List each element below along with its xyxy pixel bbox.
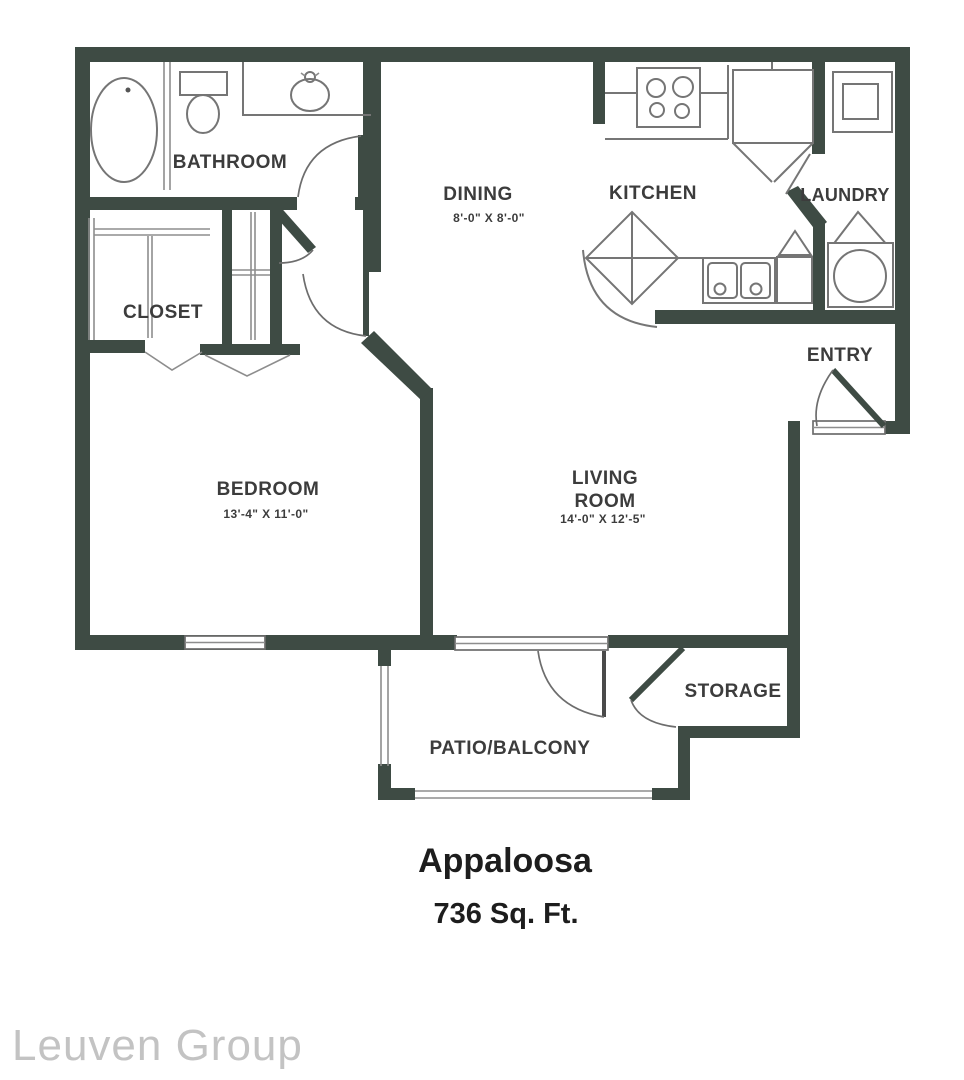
watermark-text: Leuven Group (12, 1021, 303, 1070)
cabinet-door-icon (779, 231, 811, 255)
dryer-door-icon (832, 212, 888, 246)
kitchen-sink-icon (703, 258, 775, 303)
wall-linen-bottom (200, 344, 300, 355)
toilet-bowl-icon (187, 95, 219, 133)
patio-label: PATIO/BALCONY (430, 738, 591, 759)
toilet-tank-icon (180, 72, 227, 95)
dining-label: DINING (443, 184, 513, 205)
closet-label: CLOSET (123, 302, 203, 323)
wall-kitchen-left-stub (593, 62, 605, 124)
laundry-label: LAUNDRY (800, 185, 889, 205)
living-room-dimensions: 14'-0" X 12'-5" (560, 512, 646, 526)
wall-storage-bottom (680, 726, 800, 738)
wall-bathroom-right (363, 62, 381, 272)
dining-dimensions: 8'-0" X 8'-0" (453, 211, 525, 225)
storage-door-leaf (631, 648, 683, 700)
plan-area: 736 Sq. Ft. (433, 898, 578, 930)
dryer-icon (828, 243, 893, 307)
peninsula-counter-arc (583, 250, 657, 327)
plan-name: Appaloosa (418, 842, 593, 880)
bedroom-label: BEDROOM (217, 479, 320, 500)
bathroom-sink-icon (291, 79, 329, 111)
wall-bedroom-divider (420, 388, 433, 635)
bathroom-label: BATHROOM (173, 152, 287, 173)
washer-icon (833, 72, 892, 132)
stove-icon (637, 68, 700, 127)
wall-linen-left (222, 205, 232, 350)
wall-kitchen-bottom (655, 310, 900, 324)
floor-plan-page: BATHROOM CLOSET DINING 8'-0" X 8'-0" KIT… (0, 0, 964, 1080)
living-room-label-line1: LIVING (572, 468, 638, 489)
room-labels: BATHROOM CLOSET DINING 8'-0" X 8'-0" KIT… (123, 152, 890, 759)
refrigerator-door-swing-line (733, 143, 772, 182)
entry-label: ENTRY (807, 345, 873, 366)
entry-door-arc (816, 370, 833, 426)
wall-living-right (788, 421, 800, 643)
wall-patio-foot-left (378, 788, 415, 800)
wall-linen-right (270, 205, 282, 350)
kitchen-label: KITCHEN (609, 183, 697, 204)
bathtub-drain-icon (126, 88, 131, 93)
vanity-counter-line (243, 62, 371, 115)
refrigerator-door-swing-line (774, 143, 813, 182)
wall-patio-left-stub (378, 648, 391, 666)
sink-faucet-icon (305, 72, 315, 82)
wall-bathroom-bottom (85, 197, 297, 210)
wall-storage-top (608, 635, 800, 648)
wall-laundry-left-lower (813, 222, 825, 322)
storage-label: STORAGE (684, 681, 781, 702)
kitchen-cabinet-icon (777, 257, 812, 303)
wall-closet-bottom (75, 340, 145, 353)
faucet-handle-icon (315, 73, 319, 76)
windows (185, 421, 885, 650)
floor-plan-drawing: BATHROOM CLOSET DINING 8'-0" X 8'-0" KIT… (0, 0, 964, 1080)
wall-right (895, 47, 910, 434)
title-block: Appaloosa 736 Sq. Ft. (418, 842, 593, 930)
refrigerator-icon (733, 70, 813, 143)
closet-bifold-door-left (145, 352, 202, 370)
faucet-handle-icon (301, 73, 305, 76)
bedroom-door-arc (303, 274, 366, 336)
bedroom-dimensions: 13'-4" X 11'-0" (223, 507, 308, 521)
bathroom-door-arc (298, 136, 361, 197)
wall-patio-foot-right (652, 788, 690, 800)
wall-bedroom-diagonal (361, 331, 432, 400)
patio-door-arc (538, 651, 604, 717)
entry-door-leaf (833, 370, 884, 426)
patio-railings (381, 666, 652, 798)
wall-living-bottom-stub (433, 635, 457, 650)
wall-storage-right (787, 635, 800, 738)
closet-bifold-door-right (205, 355, 290, 376)
wall-bathroom-door-stub (355, 197, 381, 210)
storage-door-arc (631, 700, 676, 727)
living-room-label-line2: ROOM (574, 491, 635, 512)
wall-top (75, 47, 910, 62)
bathtub-icon (91, 78, 157, 182)
